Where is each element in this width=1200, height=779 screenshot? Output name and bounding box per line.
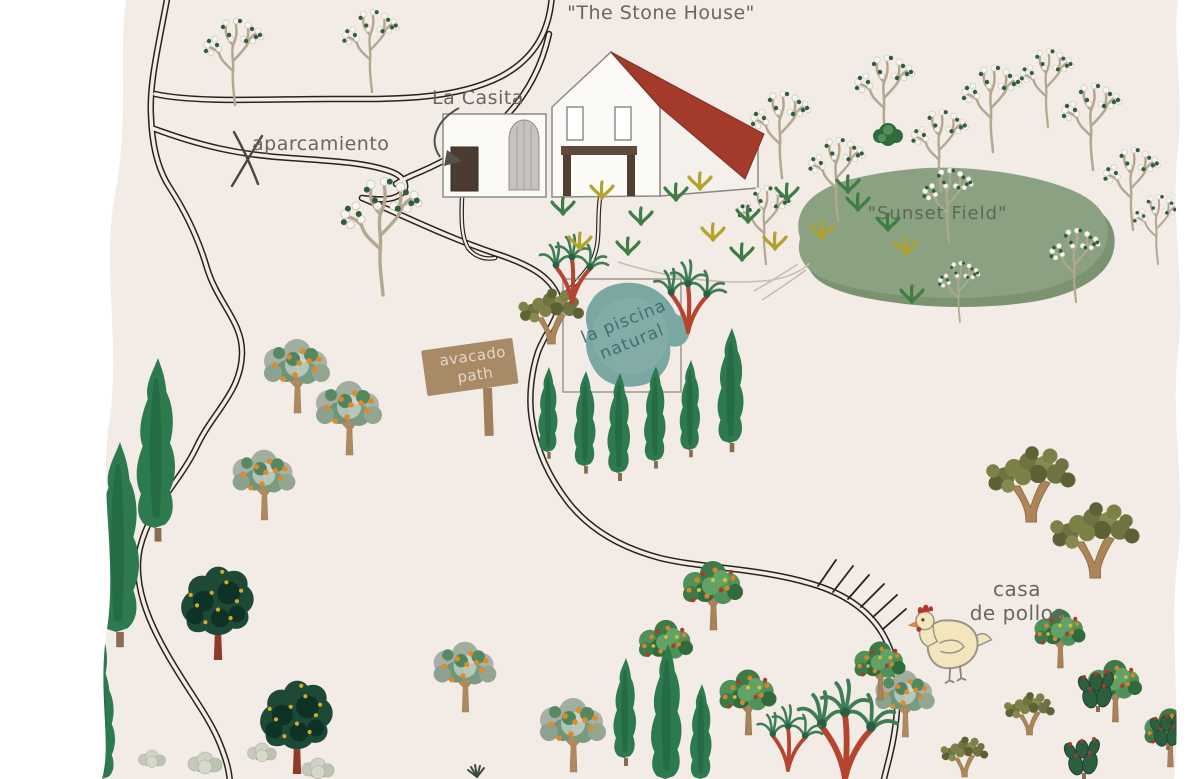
almond-tree (1103, 147, 1160, 230)
cactus-tree (1062, 737, 1101, 779)
bush-tree (873, 123, 903, 146)
window (615, 107, 631, 140)
shrub-tree (248, 743, 277, 762)
plant-tuft (630, 208, 652, 224)
beak (908, 622, 918, 629)
sunset-field-label: "Sunset Field" (840, 203, 1035, 224)
olive-tree (986, 446, 1075, 522)
cactus-tree (1076, 670, 1115, 712)
chicken-label-line1: casa (942, 577, 1092, 601)
almond-tree (1133, 194, 1181, 264)
cypress-tree (538, 367, 557, 459)
almond-tree (342, 9, 399, 92)
plant-tuft (552, 198, 574, 214)
porch-lintel (561, 146, 637, 155)
plant-tuft (702, 224, 724, 240)
cypress-tree (137, 358, 175, 542)
bright-tree (720, 669, 777, 735)
stone-house-label: "The Stone House" (556, 2, 766, 24)
porch-post (563, 155, 571, 196)
almond-tree (962, 65, 1022, 152)
porch-post (627, 155, 635, 196)
orange-tree (316, 381, 382, 455)
casita-door (451, 147, 478, 191)
map-canvas (0, 0, 1200, 779)
parking-label: aparcamiento (252, 133, 389, 155)
la-casita-label: La Casita (432, 87, 524, 109)
shrub-tree (302, 758, 334, 779)
olive-tree (1050, 502, 1139, 578)
plant-tuft (731, 244, 753, 260)
cypress-tree (690, 684, 711, 779)
fence-ticks (818, 560, 906, 629)
la-casita-building (443, 114, 546, 197)
olive-tree (1004, 692, 1055, 735)
chicken-label-line2: de pollos (942, 601, 1092, 625)
cypress-tree (651, 644, 681, 779)
almond-tree (341, 178, 422, 295)
window (567, 107, 583, 140)
plant-tuft (764, 233, 786, 249)
almond-tree (204, 18, 264, 105)
cypress-tree (718, 328, 744, 452)
olive-tree (941, 737, 989, 777)
plant-tuft (617, 238, 639, 254)
chicken-house-label: casa de pollos (942, 577, 1092, 625)
sign-post (483, 388, 494, 436)
orange-tree (875, 670, 934, 737)
plant-tuft (776, 184, 798, 200)
cypress-tree (613, 658, 636, 766)
grass-tree (468, 765, 484, 777)
dark-tree (181, 567, 254, 660)
stone-house-building (552, 52, 764, 197)
shrub-tree (188, 752, 222, 774)
comb (917, 604, 933, 613)
cypress-tree (680, 360, 700, 457)
orange-tree (233, 450, 296, 520)
cypress-tree (574, 371, 595, 474)
cypress-tree (607, 373, 630, 481)
almond-tree (1062, 83, 1122, 170)
orange-tree (434, 642, 497, 712)
illustrated-farm-map: "The Stone House" La Casita aparcamiento… (0, 0, 1200, 779)
orange-tree (540, 698, 606, 772)
shrub-tree (138, 750, 165, 768)
